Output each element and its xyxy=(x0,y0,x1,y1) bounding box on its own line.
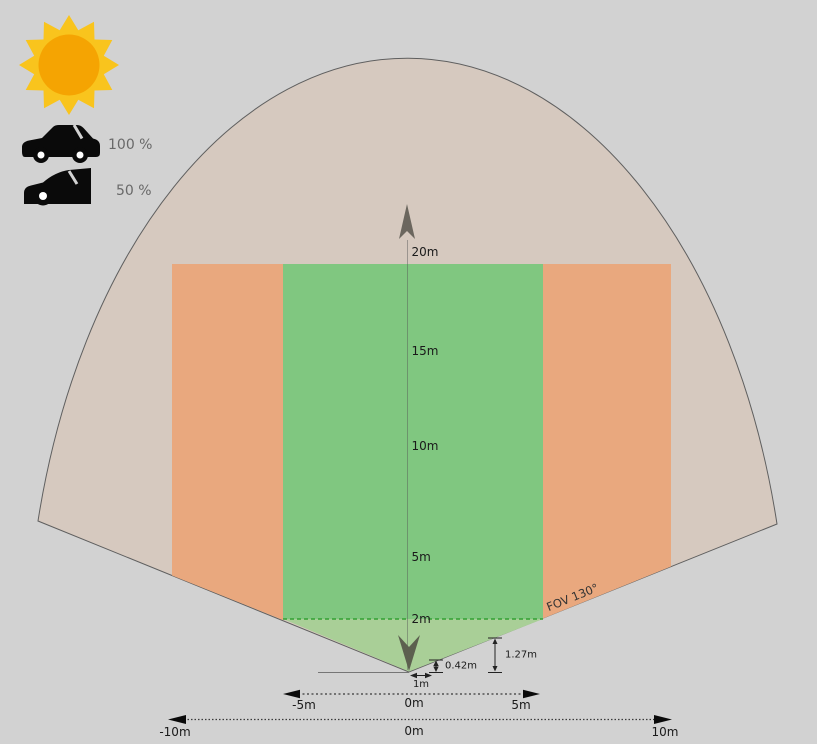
full-visibility-label: 100 % xyxy=(108,137,152,153)
inner-axis-right-arrow xyxy=(523,690,540,699)
diagram-canvas: 20m 15m 10m 5m 2m FOV 130° 1m 0.42m 1.27… xyxy=(0,0,817,744)
width-measure xyxy=(410,673,432,678)
fov-diagram: 20m 15m 10m 5m 2m FOV 130° 1m 0.42m 1.27… xyxy=(0,0,817,744)
inner-axis-max-label: 5m xyxy=(511,698,530,712)
full-car-icon xyxy=(22,125,100,163)
outer-axis-max-label: 10m xyxy=(652,725,679,739)
inner-axis-min-label: -5m xyxy=(292,698,316,712)
range-label-20m: 20m xyxy=(412,245,439,259)
outer-axis: -10m 0m 10m xyxy=(159,715,678,739)
range-label-5m: 5m xyxy=(412,550,431,564)
range-label-2m: 2m xyxy=(412,612,431,626)
occluded-zone-left xyxy=(172,264,283,620)
near-height-measure-label: 0.42m xyxy=(445,661,477,672)
half-visibility-label: 50 % xyxy=(116,183,152,199)
outer-axis-center-label: 0m xyxy=(404,724,423,738)
sun-core xyxy=(39,35,100,96)
far-height-measure-label: 1.27m xyxy=(505,650,537,661)
occluded-zone-right xyxy=(543,264,671,619)
half-car-icon xyxy=(24,168,91,206)
outer-axis-right-arrow xyxy=(654,715,672,724)
outer-axis-left-arrow xyxy=(168,715,186,724)
width-measure-label: 1m xyxy=(413,679,429,690)
range-label-10m: 10m xyxy=(412,439,439,453)
range-label-15m: 15m xyxy=(412,344,439,358)
far-height-measure xyxy=(488,638,502,673)
inner-axis-center-label: 0m xyxy=(404,696,423,710)
sun-icon xyxy=(19,15,119,115)
outer-axis-min-label: -10m xyxy=(159,725,190,739)
inner-axis: -5m 0m 5m xyxy=(283,690,540,712)
inner-axis-left-arrow xyxy=(283,690,300,699)
